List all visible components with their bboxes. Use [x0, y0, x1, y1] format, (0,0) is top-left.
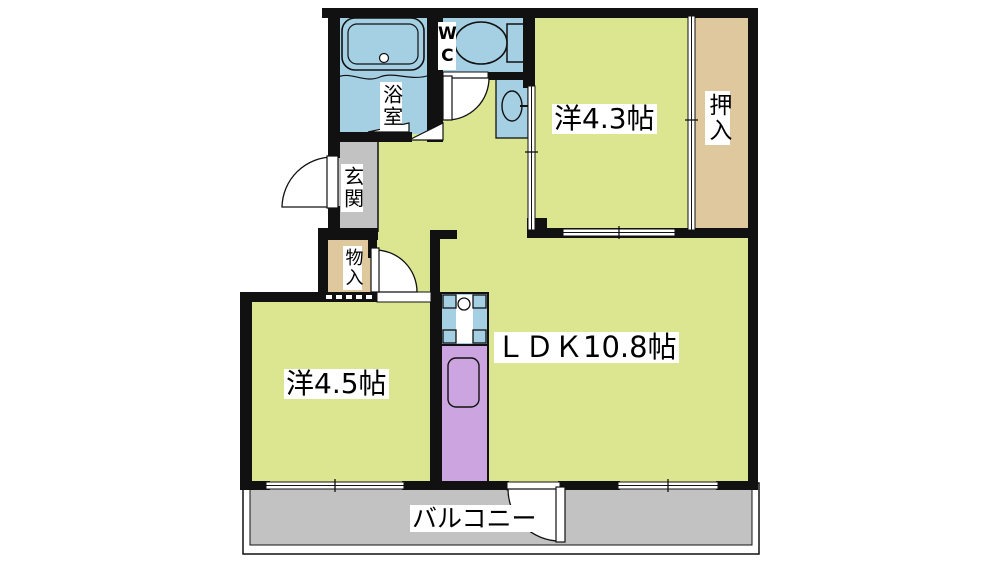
floorplan-canvas: 洋4.3帖 押入 浴室 WC 玄関 物入 洋4.5帖 ＬＤＫ10.8帖 バルコニ… — [0, 0, 1000, 562]
label-oshiire: 押入 — [705, 91, 730, 145]
label-western-room-43: 洋4.3帖 — [552, 104, 657, 134]
floorplan-drawing — [0, 0, 1000, 562]
label-wc: WC — [438, 22, 456, 70]
refrigerator-space — [441, 345, 488, 483]
label-balcony: バルコニー — [410, 505, 539, 532]
label-storage: 物入 — [343, 246, 362, 290]
label-ldk: ＬＤＫ10.8帖 — [494, 332, 679, 363]
entrance-door — [282, 156, 338, 208]
label-western-room-45: 洋4.5帖 — [284, 369, 389, 399]
western-room-45-doorway — [377, 292, 431, 302]
sink-icon — [458, 298, 470, 310]
label-bathroom: 浴室 — [380, 82, 402, 130]
floor-regions — [240, 8, 758, 490]
kitchen-unit — [441, 293, 488, 345]
label-entrance: 玄関 — [341, 164, 363, 212]
